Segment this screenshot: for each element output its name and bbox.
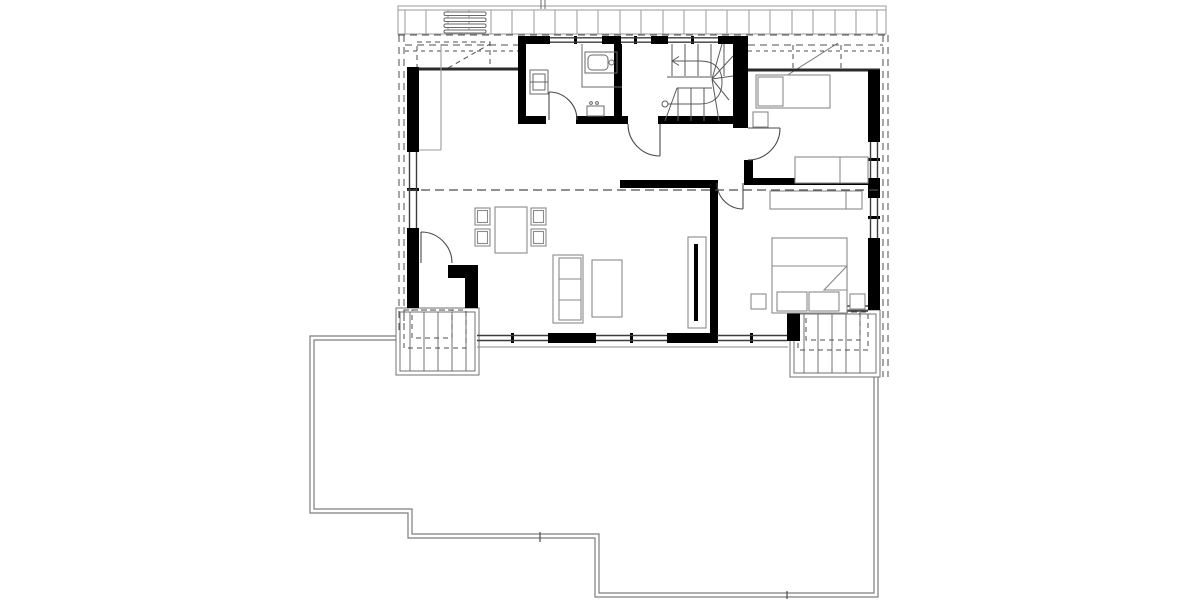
wall — [667, 333, 717, 343]
slope-diagonal-left — [448, 44, 490, 68]
slope-zone-left — [417, 42, 490, 68]
wall — [448, 265, 478, 278]
double-bed — [772, 238, 847, 313]
radiator-core — [694, 244, 698, 321]
bed-pillow — [809, 292, 839, 311]
dining-table — [495, 207, 527, 253]
stair-door — [628, 124, 660, 156]
kids-nightstand — [753, 112, 768, 127]
slope-zone-right — [793, 45, 841, 70]
wall — [868, 238, 880, 310]
kids-bed-pillow — [758, 77, 783, 106]
bathroom-fixtures — [530, 44, 622, 116]
stair-start-circle — [662, 101, 668, 107]
overhang-rect — [404, 310, 466, 348]
kids-bed — [756, 75, 830, 108]
balcony-south-overhang — [798, 312, 868, 350]
terrace-outline — [310, 336, 878, 599]
bathtub-basin — [588, 55, 608, 70]
closet — [419, 44, 441, 150]
wardrobe-outline — [770, 191, 862, 209]
balcony-west — [396, 308, 479, 375]
balcony-south — [790, 310, 880, 377]
wall — [710, 182, 718, 343]
sofa-cushions — [559, 258, 581, 320]
bathtub — [585, 52, 617, 73]
wall — [518, 116, 546, 124]
wall — [576, 116, 628, 124]
chair-seat — [478, 232, 488, 244]
bedroom-door — [717, 183, 743, 209]
terrace-outer — [310, 336, 878, 597]
floor-plan-page — [0, 0, 1200, 600]
stair-winder-treads — [712, 44, 733, 121]
wall — [602, 36, 621, 44]
wall — [868, 70, 880, 142]
wardrobe — [770, 191, 862, 209]
terrace-inner — [314, 340, 874, 593]
desk-sofa — [795, 157, 868, 183]
window-mullion-tick — [511, 333, 514, 343]
stair-walking-line — [668, 61, 722, 104]
staircase — [662, 44, 733, 121]
wall — [868, 178, 880, 198]
bathroom-door — [549, 92, 577, 120]
balcony-west-overhang — [404, 310, 466, 348]
roof-deck-band — [398, 0, 886, 34]
wall — [620, 180, 718, 188]
nightstand-right — [850, 294, 865, 309]
wall — [465, 278, 478, 308]
chair-seat — [478, 211, 488, 223]
vent-mark — [541, 0, 545, 9]
bathtub-drain — [609, 60, 614, 65]
window-mullion-tick — [630, 333, 633, 343]
sink-tap — [590, 102, 593, 105]
wall — [744, 160, 753, 185]
desk-sofa-outline — [795, 157, 868, 183]
floor-plan-svg — [0, 0, 1200, 600]
balcony-west-door — [421, 232, 452, 263]
overhang-left — [399, 35, 404, 335]
overhang-right — [883, 35, 888, 377]
sofa — [553, 255, 583, 323]
wall — [658, 116, 748, 124]
terrace-joint-ticks — [540, 532, 787, 599]
wall — [733, 36, 748, 128]
wall — [651, 36, 668, 44]
wall — [518, 36, 526, 124]
slat — [444, 30, 486, 33]
wall — [614, 44, 622, 124]
nightstand-left — [751, 294, 766, 309]
stair-flight-divider — [667, 77, 712, 88]
sink-tap — [596, 102, 599, 105]
balcony-west-planks — [410, 312, 466, 371]
slat-grille — [444, 12, 486, 33]
slat — [444, 24, 486, 28]
bed-pillow — [777, 292, 807, 311]
overhang-rect — [798, 312, 868, 350]
slat — [444, 18, 486, 22]
slat — [444, 12, 486, 16]
wall — [407, 67, 419, 152]
wall — [548, 333, 596, 343]
small-sink — [587, 102, 604, 116]
overhang-rect — [806, 312, 860, 340]
radiator — [688, 237, 706, 328]
wall — [407, 228, 419, 308]
washbasin-unit — [530, 70, 548, 94]
balcony-south-planks — [804, 314, 860, 373]
window-mullion-tick — [750, 333, 753, 343]
overhang-rect — [412, 310, 452, 338]
chair-seat — [534, 232, 544, 244]
sink-outline — [587, 106, 604, 116]
kids-room-door — [748, 128, 780, 160]
stair-upper-treads — [672, 44, 724, 76]
chair-seat — [534, 211, 544, 223]
coffee-table — [592, 260, 622, 317]
